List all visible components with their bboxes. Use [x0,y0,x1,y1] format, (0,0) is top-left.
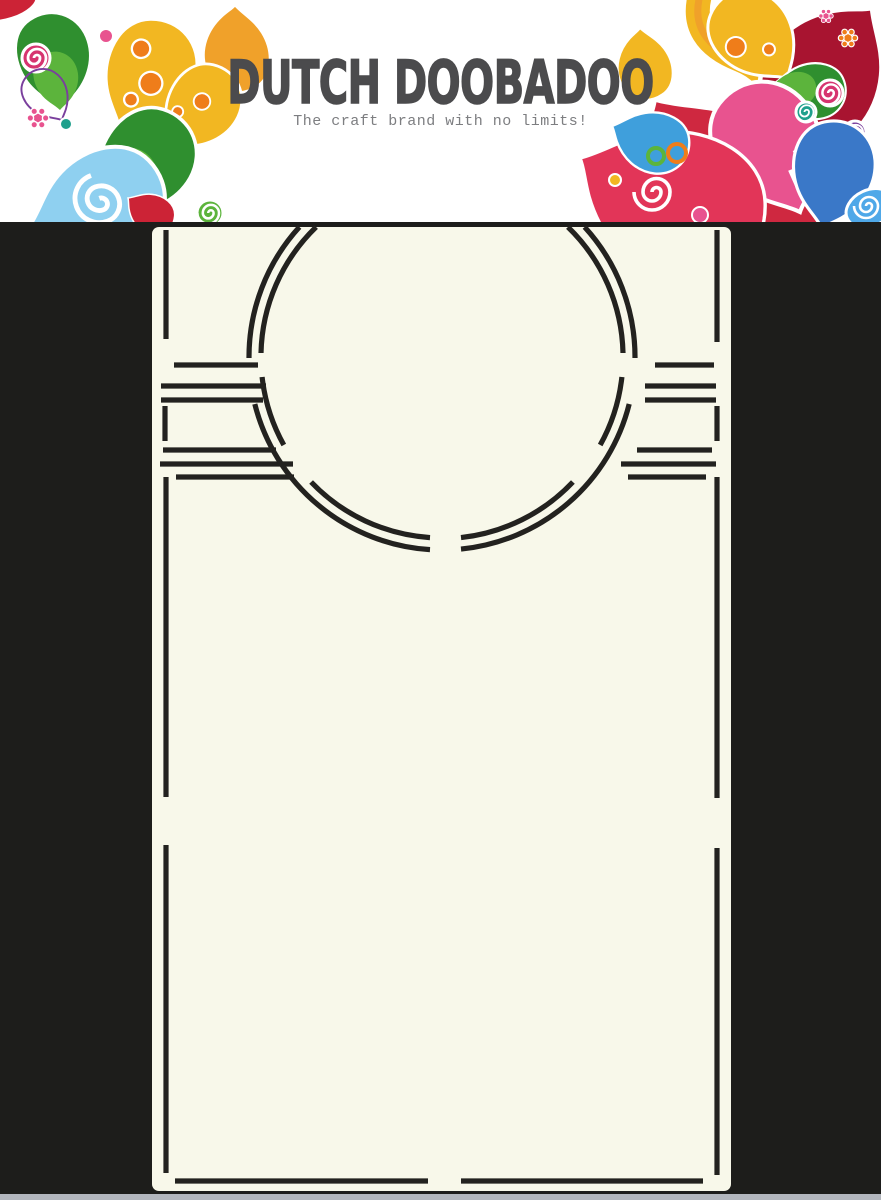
brand-tagline: The craft brand with no limits! [0,113,881,131]
brand-banner: DUTCH DOOBADOO The craft brand with no l… [0,0,881,222]
stencil-product-photo [0,222,881,1200]
photo-bottom-strip [0,1194,881,1200]
brand-title: DUTCH DOOBADOO [145,53,735,113]
product-image: DUTCH DOOBADOO The craft brand with no l… [0,0,881,1200]
stencil-card [152,227,731,1191]
